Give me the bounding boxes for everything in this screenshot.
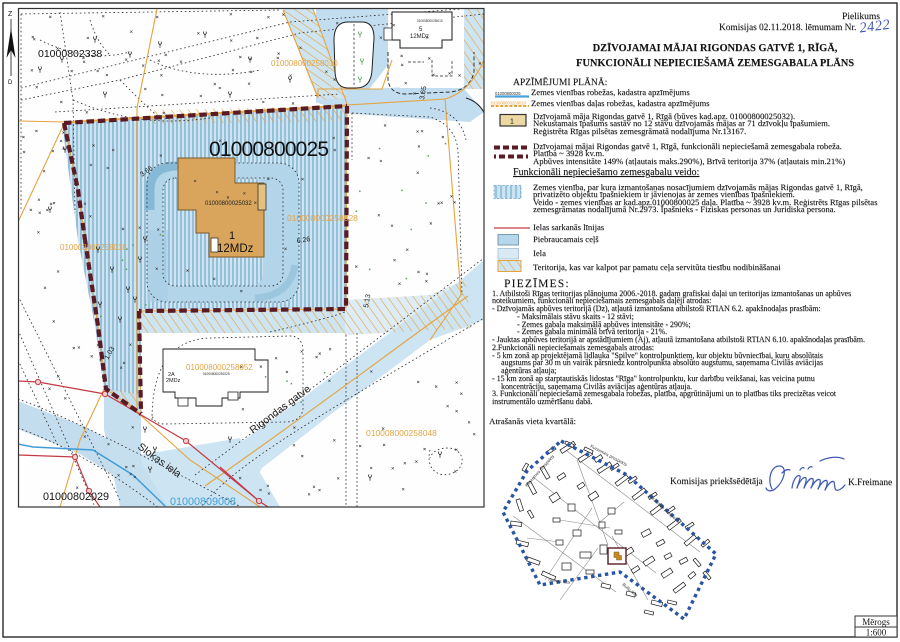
svg-text:010008000258028: 010008000258028: [287, 213, 358, 223]
svg-text:1: 1: [229, 230, 235, 242]
svg-text:010008000258052: 010008000258052: [186, 363, 253, 372]
svg-text:12MDz: 12MDz: [217, 243, 254, 255]
svg-text:1: 1: [510, 119, 514, 126]
svg-text:010008000258010: 010008000258010: [271, 59, 338, 68]
svg-text:01000802029: 01000802029: [43, 491, 109, 503]
svg-text:01000800025: 01000800025: [495, 91, 521, 96]
svg-text:01000800025I010: 01000800025I010: [417, 19, 443, 23]
svg-text:01000800025032: 01000800025032: [205, 201, 252, 207]
svg-text:010008000251025: 010008000251025: [203, 372, 230, 376]
svg-text:010008000258018: 010008000258018: [60, 243, 127, 252]
svg-text:1:600: 1:600: [866, 628, 887, 638]
svg-text:Mērogs: Mērogs: [862, 617, 890, 627]
svg-text:2MDz: 2MDz: [166, 378, 181, 384]
svg-text:12MDz: 12MDz: [410, 34, 429, 40]
svg-text:01000802338: 01000802338: [38, 48, 102, 60]
svg-text:010008000258048: 010008000258048: [366, 428, 437, 438]
svg-text:01000800025: 01000800025: [209, 138, 329, 161]
svg-text:Kurzemes prospekts: Kurzemes prospekts: [647, 493, 681, 525]
svg-text:01000809008: 01000809008: [170, 496, 236, 508]
svg-text:D: D: [8, 80, 13, 86]
svg-text:010008000258010: 010008000258010: [491, 101, 527, 106]
svg-text:Z: Z: [8, 11, 13, 18]
